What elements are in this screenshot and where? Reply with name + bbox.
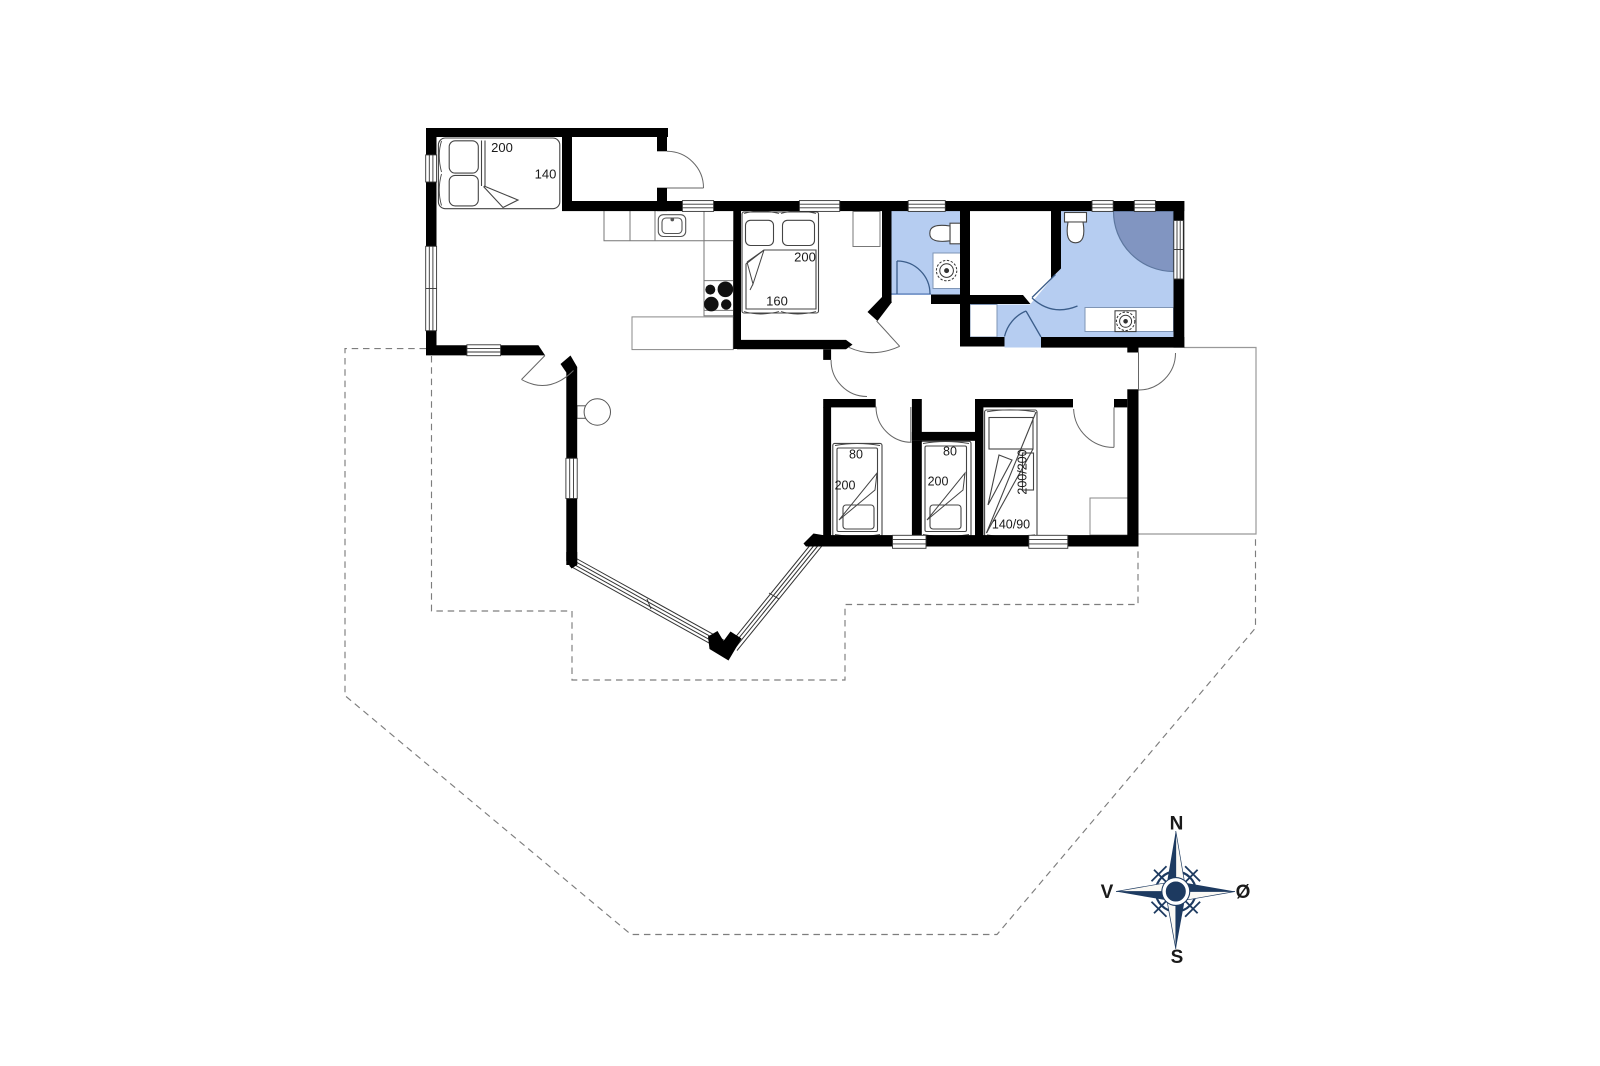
svg-text:200: 200: [928, 475, 949, 489]
svg-text:N: N: [1170, 814, 1184, 835]
svg-text:200/200: 200/200: [1016, 449, 1030, 494]
svg-text:S: S: [1171, 947, 1184, 968]
svg-text:140/90: 140/90: [992, 518, 1030, 532]
svg-text:V: V: [1101, 882, 1114, 903]
svg-text:160: 160: [766, 294, 788, 309]
svg-text:200: 200: [835, 479, 856, 493]
svg-text:80: 80: [943, 445, 957, 459]
svg-text:Ø: Ø: [1236, 882, 1251, 903]
svg-text:200: 200: [794, 250, 816, 265]
svg-text:80: 80: [849, 448, 863, 462]
svg-text:140: 140: [535, 167, 557, 182]
svg-text:200: 200: [491, 140, 513, 155]
